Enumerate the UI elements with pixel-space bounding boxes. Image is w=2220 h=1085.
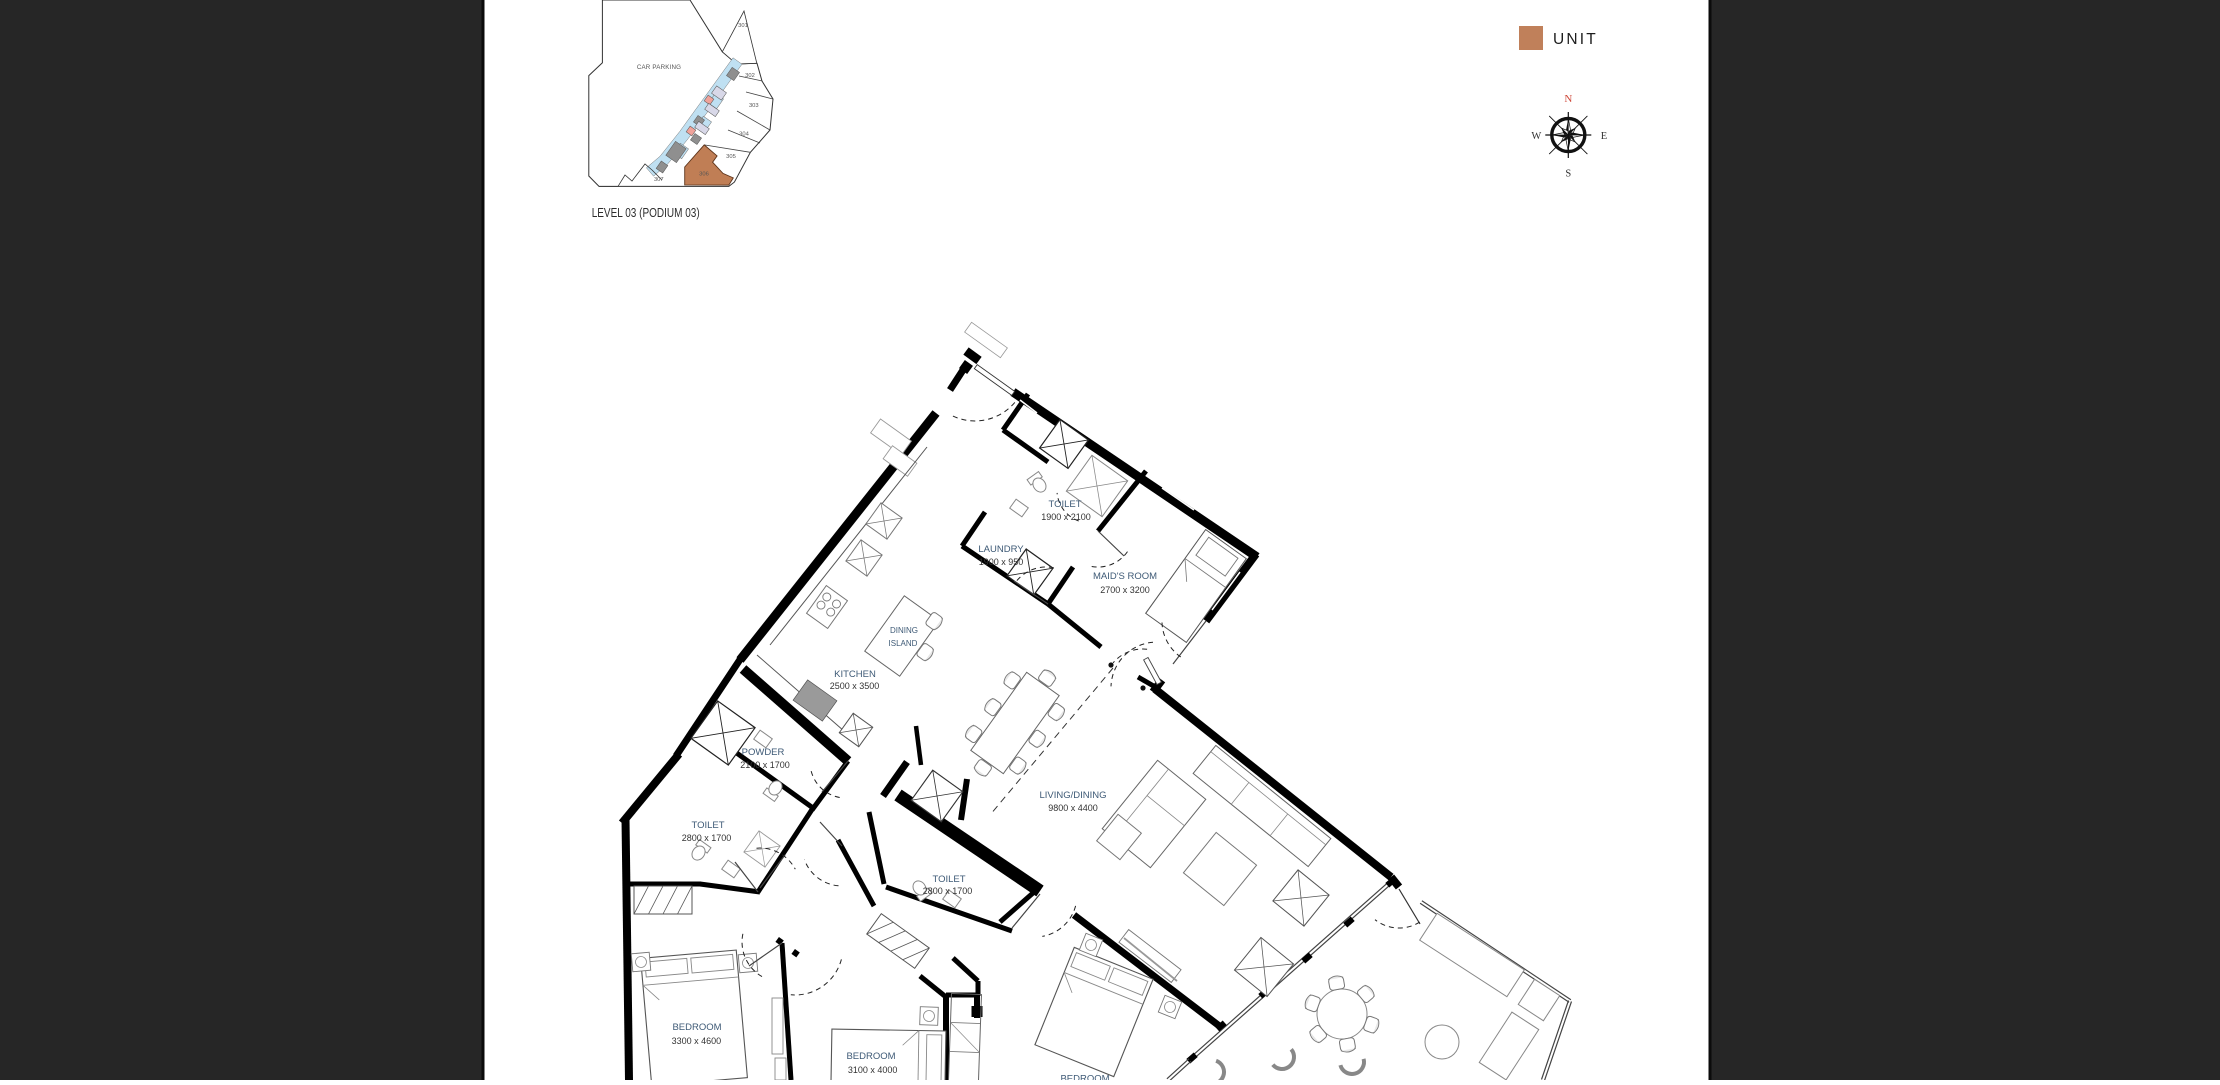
svg-text:305: 305: [726, 154, 736, 160]
svg-text:MAID'S ROOM: MAID'S ROOM: [1093, 571, 1157, 582]
svg-text:302: 302: [745, 73, 755, 79]
svg-text:BEDROOM: BEDROOM: [846, 1051, 895, 1062]
svg-text:LAUNDRY: LAUNDRY: [978, 544, 1024, 555]
svg-text:9800 x 4400: 9800 x 4400: [1048, 803, 1098, 813]
svg-text:3300 x 4600: 3300 x 4600: [672, 1036, 722, 1046]
svg-text:UNIT: UNIT: [1553, 31, 1598, 48]
svg-text:CAR PARKING: CAR PARKING: [637, 64, 681, 71]
svg-text:BEDROOM: BEDROOM: [672, 1022, 721, 1033]
svg-text:301: 301: [738, 23, 748, 29]
svg-text:1900 x 950: 1900 x 950: [979, 557, 1024, 567]
svg-text:2500 x 3500: 2500 x 3500: [830, 681, 880, 691]
svg-text:BEDROOM: BEDROOM: [1060, 1074, 1109, 1081]
svg-text:POWDER: POWDER: [742, 747, 785, 758]
svg-text:N: N: [1564, 93, 1572, 105]
svg-text:TOILET: TOILET: [691, 820, 724, 831]
svg-text:3100 x 4000: 3100 x 4000: [848, 1065, 898, 1075]
svg-text:1900 x 2100: 1900 x 2100: [1041, 512, 1091, 522]
svg-text:E: E: [1601, 131, 1607, 142]
svg-text:LEVEL 03 (PODIUM 03): LEVEL 03 (PODIUM 03): [592, 206, 700, 220]
svg-text:304: 304: [739, 132, 749, 138]
svg-text:W: W: [1531, 131, 1541, 142]
svg-text:TOILET: TOILET: [932, 874, 965, 885]
svg-text:S: S: [1565, 169, 1571, 180]
svg-text:307: 307: [654, 177, 664, 183]
svg-text:306: 306: [699, 172, 709, 178]
svg-text:ISLAND: ISLAND: [889, 639, 918, 648]
svg-text:KITCHEN: KITCHEN: [834, 669, 876, 680]
svg-text:2800 x 1700: 2800 x 1700: [923, 886, 973, 896]
svg-text:TOILET: TOILET: [1048, 499, 1081, 510]
svg-text:2800 x 1700: 2800 x 1700: [682, 833, 732, 843]
svg-text:DINING: DINING: [890, 626, 918, 635]
svg-text:2700 x 3200: 2700 x 3200: [1100, 585, 1150, 595]
svg-text:303: 303: [749, 103, 759, 109]
svg-text:2100 x 1700: 2100 x 1700: [740, 760, 790, 770]
svg-text:LIVING/DINING: LIVING/DINING: [1039, 790, 1106, 801]
